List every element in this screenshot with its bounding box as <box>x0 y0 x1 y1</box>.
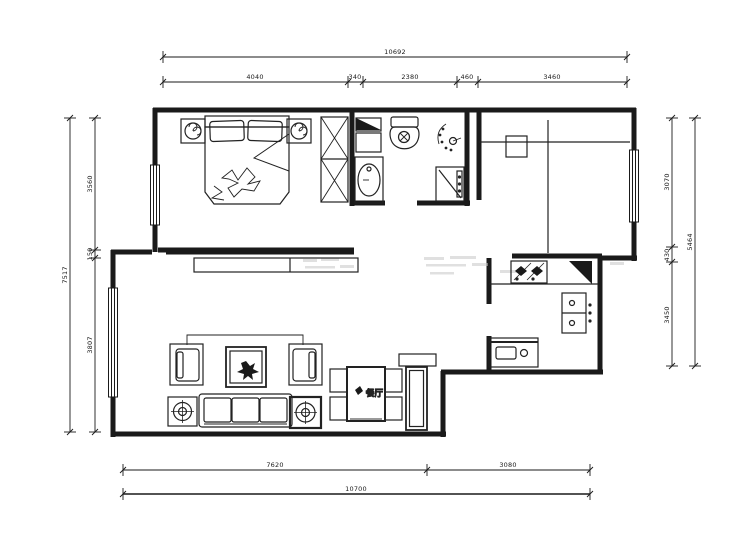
plant-icon <box>237 361 259 380</box>
dim-left-seg-0: 3560 <box>86 175 94 192</box>
dining-chair-tl <box>330 369 347 392</box>
dim-bottom-total: 10700 <box>345 485 367 493</box>
tall-cabinet <box>406 367 427 430</box>
dim-right-inner <box>666 115 678 369</box>
dim-top-seg-1: 340 <box>348 73 361 81</box>
bedroom2-nightstand <box>506 136 527 157</box>
dining-room-label: 餐厅 <box>366 389 384 399</box>
window-bedroom2-right <box>630 150 639 222</box>
sofa-back-line <box>187 335 303 345</box>
dim-right-seg-0: 3070 <box>663 173 671 190</box>
sofa-3seat <box>199 394 292 427</box>
double-bed <box>205 116 289 204</box>
dining-chair-br <box>385 397 402 420</box>
armchair-left <box>170 344 203 385</box>
dim-top-total: 10692 <box>384 48 406 56</box>
gas-stove <box>511 261 547 283</box>
dim-top-seg-4: 3460 <box>543 73 560 81</box>
dim-left-inner <box>89 115 101 435</box>
floor-plan-svg: 餐厅 <box>0 0 740 540</box>
bedside-decor-left <box>181 119 205 143</box>
side-table-right <box>290 397 321 428</box>
windows <box>109 150 639 397</box>
dim-bottom-inner <box>120 464 593 476</box>
wardrobe <box>321 117 348 202</box>
dim-right-seg-1: 430 <box>663 248 671 261</box>
hall-shelf <box>399 354 436 366</box>
toilet <box>390 117 419 149</box>
dim-top-seg-0: 4040 <box>246 73 263 81</box>
dim-left-total: 7517 <box>61 266 69 283</box>
dim-bottom-seg-1: 3080 <box>499 461 516 469</box>
shower-sketch <box>438 124 461 151</box>
dining-decor-scribble <box>355 386 363 395</box>
window-living-left <box>109 288 118 397</box>
floor-plan-canvas: 餐厅 <box>0 0 740 540</box>
dining-area: 餐厅 <box>330 354 436 430</box>
corner-shelf <box>356 118 381 152</box>
washing-machine <box>436 167 464 201</box>
dim-left-seg-1: 150 <box>86 247 94 260</box>
side-table-left <box>168 397 197 426</box>
dining-chair-bl <box>330 397 347 420</box>
dim-top-seg-2: 2380 <box>401 73 418 81</box>
armchair-right <box>289 344 322 385</box>
window-bedroom-left <box>151 165 160 225</box>
corner-cabinet-dark <box>569 261 592 284</box>
washbasin <box>355 157 383 203</box>
double-sink-unit <box>562 293 591 333</box>
coffee-table <box>226 347 266 387</box>
dim-right-seg-2: 3450 <box>663 306 671 323</box>
dim-right-total: 5464 <box>686 233 694 250</box>
bedroom2 <box>479 120 630 253</box>
dining-chair-tr <box>385 369 402 392</box>
bedroom1 <box>181 116 348 204</box>
dim-left-seg-2: 3807 <box>86 336 94 353</box>
dim-bottom-seg-0: 7620 <box>266 461 283 469</box>
dim-top-seg-3: 460 <box>460 73 473 81</box>
bathroom <box>355 117 464 203</box>
bed-decor-scribble <box>222 168 260 197</box>
bedside-decor-right <box>287 119 311 143</box>
kitchen <box>489 261 598 367</box>
kitchen-lower-counter <box>489 338 538 367</box>
